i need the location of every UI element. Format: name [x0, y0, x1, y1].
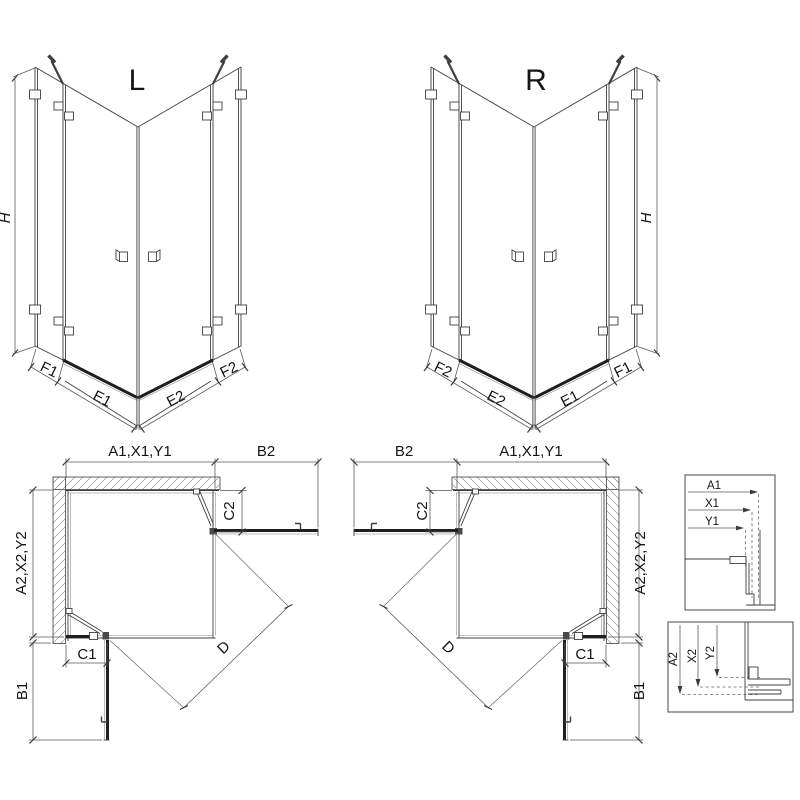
plan-right-c2-label: C2 — [414, 501, 431, 520]
plan-right-c1-label: C1 — [575, 646, 594, 663]
detail-box-depth: A2 X2 Y2 — [668, 622, 793, 712]
detail-y2-label: Y2 — [705, 646, 717, 660]
technical-drawing: L H F1 E1 E2 F2 R H F2 E2 E1 F1 A1,X1,Y1… — [0, 0, 800, 800]
detail-y1-label: Y1 — [705, 516, 719, 528]
plan-left-depth-label: A2,X2,Y2 — [13, 531, 30, 594]
iso-left-e1-label: E1 — [90, 387, 114, 410]
plan-view-right: B2 A1,X1,Y1 C2 A2,X2,Y2 C1 B1 D — [351, 443, 650, 744]
iso-right-height-label: H — [638, 212, 655, 223]
iso-right-view-label: R — [525, 64, 547, 97]
plan-right-b2-label: B2 — [395, 443, 413, 460]
plan-right-d-label: D — [438, 638, 458, 658]
plan-view-left: A1,X1,Y1 B2 A2,X2,Y2 C2 C1 B1 D — [13, 443, 322, 744]
iso-right-e1-label: E1 — [558, 387, 582, 410]
plan-left-c2-label: C2 — [221, 501, 238, 520]
detail-a1-label: A1 — [707, 480, 721, 492]
iso-left-view-label: L — [129, 64, 146, 97]
plan-left-b1-label: B1 — [14, 682, 31, 700]
plan-right-geometry — [351, 459, 644, 744]
iso-right-f2-label: F2 — [431, 358, 454, 381]
plan-left-geometry — [29, 459, 322, 744]
plan-right-depth-label: A2,X2,Y2 — [632, 531, 649, 594]
plan-left-d-label: D — [214, 638, 234, 658]
detail-x1-label: X1 — [705, 498, 719, 510]
detail-x2-label: X2 — [687, 649, 699, 663]
drawing-sheet: L H F1 E1 E2 F2 R H F2 E2 E1 F1 A1,X1,Y1… — [0, 0, 800, 800]
plan-right-b1-label: B1 — [631, 682, 648, 700]
iso-left-e2-label: E2 — [164, 387, 188, 410]
iso-view-left: L H F1 E1 E2 F2 — [0, 56, 248, 433]
iso-view-right: R H F2 E2 E1 F1 — [424, 56, 660, 433]
iso-right-e2-label: E2 — [484, 387, 508, 410]
iso-left-height-label: H — [0, 212, 14, 223]
plan-left-c1-label: C1 — [77, 646, 96, 663]
detail-box-width: A1 X1 Y1 — [685, 475, 775, 610]
plan-left-b2-label: B2 — [257, 443, 275, 460]
iso-left-f2-label: F2 — [217, 358, 240, 381]
iso-left-f1-label: F1 — [37, 358, 60, 381]
plan-left-width-label: A1,X1,Y1 — [108, 443, 171, 460]
plan-right-width-label: A1,X1,Y1 — [499, 443, 562, 460]
iso-right-f1-label: F1 — [611, 358, 634, 381]
detail-a2-label: A2 — [668, 652, 680, 666]
